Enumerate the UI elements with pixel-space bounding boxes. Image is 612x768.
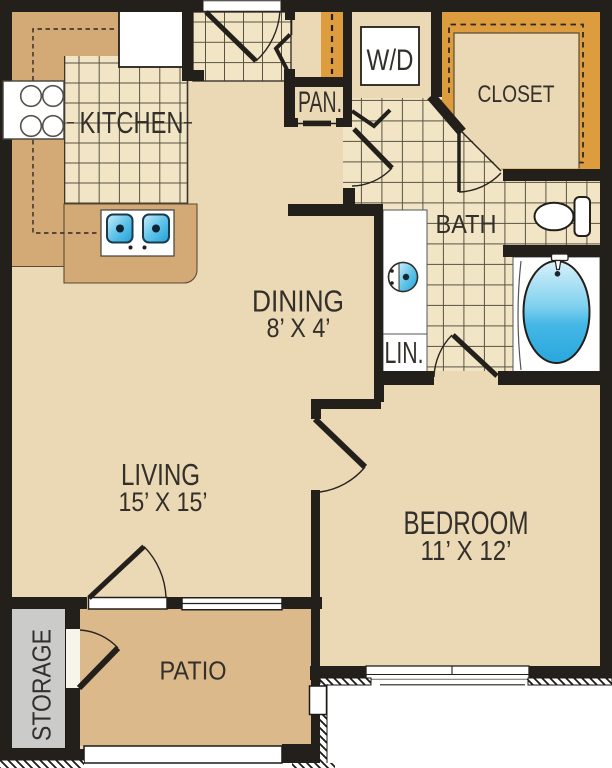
- svg-text:STORAGE: STORAGE: [27, 629, 57, 741]
- svg-text:CLOSET: CLOSET: [478, 81, 555, 108]
- svg-text:W/D: W/D: [367, 44, 414, 77]
- svg-text:PAN.: PAN.: [298, 86, 342, 119]
- svg-text:LIN.: LIN.: [385, 335, 424, 370]
- svg-text:15’ X 15’: 15’ X 15’: [119, 487, 208, 517]
- svg-text:KITCHEN: KITCHEN: [80, 105, 184, 140]
- svg-text:BATH: BATH: [436, 209, 497, 239]
- svg-text:PATIO: PATIO: [160, 656, 227, 686]
- svg-text:8’ X 4’: 8’ X 4’: [267, 313, 331, 343]
- svg-text:11’ X 12’: 11’ X 12’: [421, 535, 512, 566]
